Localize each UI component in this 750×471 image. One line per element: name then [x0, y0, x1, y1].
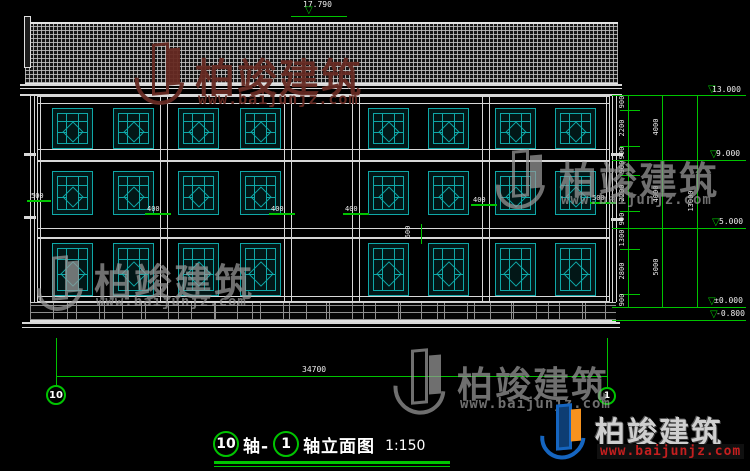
- elevation-value: -0.800: [716, 310, 745, 318]
- dim-total: 5000: [652, 256, 660, 278]
- dim-segment: 1300: [618, 228, 626, 248]
- title-axis-left: 10: [213, 431, 239, 457]
- title-underline: [214, 461, 450, 464]
- dim-overall-width: 34700: [302, 366, 326, 374]
- window: [113, 108, 154, 149]
- brand-url: www.baijunjz.com: [597, 444, 744, 459]
- ground-line: [22, 322, 620, 324]
- brand-logo-icon: [495, 148, 553, 210]
- title-name: 轴立面图: [303, 432, 375, 457]
- elevation-value: ±0.000: [714, 297, 743, 305]
- window: [52, 108, 93, 149]
- window: [495, 108, 536, 149]
- axis-bubble-10: 10: [46, 385, 66, 405]
- title-axis-right: 1: [273, 431, 299, 457]
- title-joiner: 轴-: [243, 432, 269, 457]
- watermark-right: 柏竣建筑 www.baijunjz.com: [495, 146, 740, 212]
- brand-url: www.baijunjz.com: [198, 90, 359, 108]
- brand-url: www.baijunjz.com: [96, 294, 247, 310]
- brand-url: www.baijunjz.com: [561, 192, 712, 208]
- ground-line: [22, 327, 620, 328]
- watermark-top: 柏竣建筑 www.baijunjz.com: [135, 40, 397, 110]
- dim-segment: 900: [618, 290, 626, 310]
- window: [555, 108, 596, 149]
- window: [178, 108, 219, 149]
- title-scale: 1:150: [385, 438, 425, 454]
- dim-inline: 400: [271, 205, 284, 213]
- roof-gable-end: [24, 16, 31, 68]
- brand-logo-icon: [135, 40, 191, 108]
- dim-total: 4000: [652, 116, 660, 138]
- dim-inline: 500: [31, 192, 44, 200]
- dim-segment: 2200: [618, 118, 626, 138]
- dim-segment: 900: [618, 209, 626, 229]
- drawing-title: 10 轴- 1 轴立面图 1:150: [213, 431, 425, 457]
- dim-segment: 900: [618, 92, 626, 112]
- brand-logo-icon: [36, 254, 90, 312]
- window: [368, 243, 409, 296]
- brand-logo-icon: [394, 346, 452, 418]
- brand-logo-icon: [540, 402, 592, 462]
- window: [178, 171, 219, 215]
- dim-inline: 400: [473, 196, 486, 204]
- window: [555, 243, 596, 296]
- elevation-value: 5.000: [719, 218, 743, 226]
- elevation-marker-icon: [305, 6, 313, 16]
- dim-inline: 400: [345, 205, 358, 213]
- window: [368, 171, 409, 215]
- window: [428, 171, 469, 215]
- window: [52, 171, 93, 215]
- cad-elevation-drawing: 17.790 900 2200 900 900 2200 900 1300 28…: [0, 0, 750, 471]
- dim-inline: 400: [147, 205, 160, 213]
- watermark-corner-logo: 柏竣建筑 www.baijunjz.com: [540, 402, 746, 466]
- watermark-left: 柏竣建筑 www.baijunjz.com: [36, 250, 281, 314]
- elevation-value: 13.000: [712, 86, 741, 94]
- dim-inline: 600: [404, 222, 412, 242]
- elevation-marker-line: [291, 16, 347, 17]
- window: [368, 108, 409, 149]
- window: [495, 243, 536, 296]
- window: [428, 108, 469, 149]
- title-underline: [214, 466, 450, 467]
- dim-segment: 2800: [618, 261, 626, 281]
- window: [240, 108, 281, 149]
- window: [428, 243, 469, 296]
